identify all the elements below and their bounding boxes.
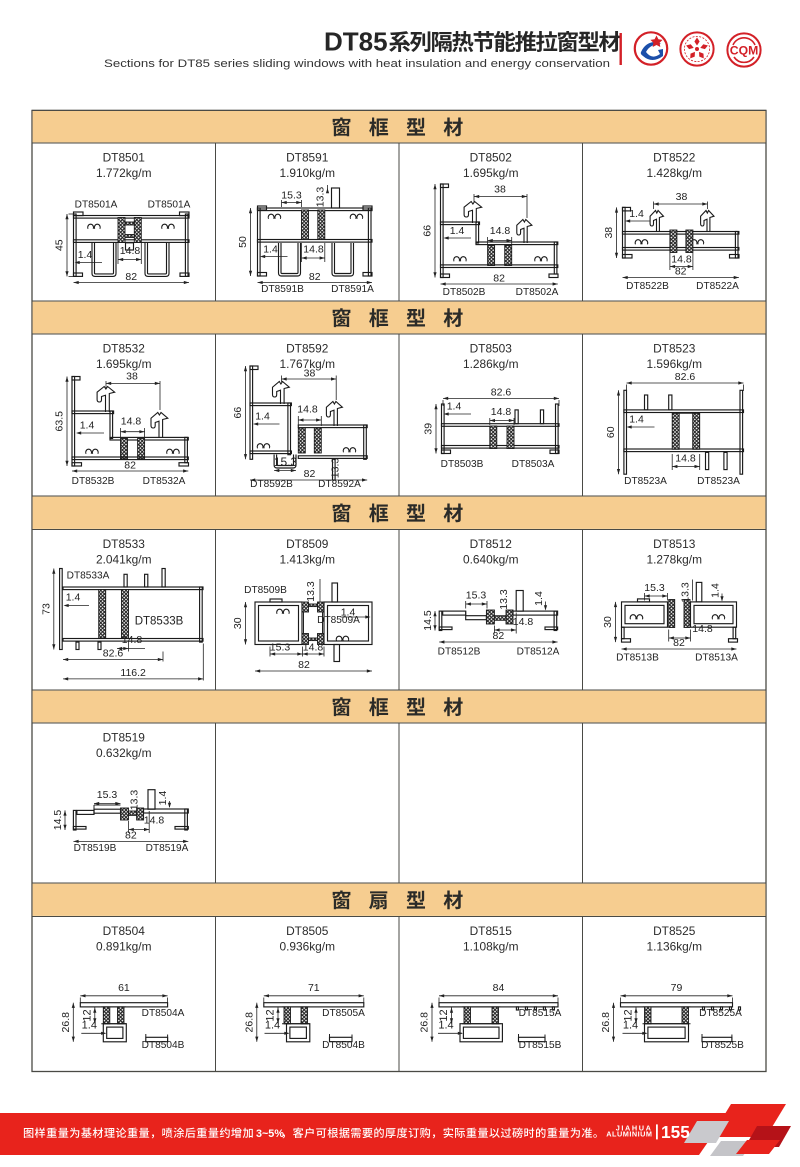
svg-text:14.5: 14.5 [422,610,434,631]
svg-text:DT8501A: DT8501A [75,200,118,211]
svg-text:0.891kg/m: 0.891kg/m [96,940,152,954]
svg-text:DT8512B: DT8512B [438,647,481,658]
svg-text:66: 66 [422,225,434,237]
svg-text:1.428kg/m: 1.428kg/m [646,166,702,180]
svg-text:1.4: 1.4 [263,244,278,256]
svg-text:1.4: 1.4 [533,591,545,606]
svg-text:CQM: CQM [730,44,758,58]
svg-text:14.8: 14.8 [692,623,713,635]
svg-text:45: 45 [54,239,66,251]
svg-text:DT8515B: DT8515B [519,1040,562,1051]
svg-text:DT8522B: DT8522B [626,281,669,292]
svg-text:82: 82 [124,460,136,472]
svg-text:DT8532A: DT8532A [143,476,186,487]
svg-text:DT8533B: DT8533B [135,616,184,628]
svg-text:14.8: 14.8 [303,244,324,256]
svg-text:DT8525A: DT8525A [699,1008,742,1019]
svg-text:DT8513A: DT8513A [695,653,738,664]
svg-text:15.3: 15.3 [97,789,118,801]
svg-text:DT8513B: DT8513B [616,653,659,664]
svg-text:39: 39 [423,423,435,435]
svg-text:DT8509B: DT8509B [244,585,287,596]
svg-text:82: 82 [309,271,321,283]
svg-text:1.695kg/m: 1.695kg/m [463,166,519,180]
svg-text:30: 30 [232,617,244,629]
svg-text:DT8522A: DT8522A [696,281,739,292]
svg-text:14.8: 14.8 [671,254,692,266]
svg-text:1.286kg/m: 1.286kg/m [463,357,519,371]
svg-text:38: 38 [603,227,615,239]
svg-text:DT8525B: DT8525B [701,1040,744,1051]
svg-text:14.8: 14.8 [144,815,165,827]
svg-text:1.4: 1.4 [450,225,465,237]
svg-text:79: 79 [671,982,683,994]
svg-text:DT8532: DT8532 [103,341,146,355]
svg-text:61: 61 [118,982,130,994]
svg-text:1.4: 1.4 [66,592,81,604]
svg-text:15.3: 15.3 [270,642,291,654]
svg-text:14.8: 14.8 [121,416,142,428]
svg-text:1.4: 1.4 [80,420,95,432]
svg-text:14.8: 14.8 [303,642,324,654]
svg-text:DT8504A: DT8504A [142,1008,185,1019]
svg-text:1.4: 1.4 [447,401,462,413]
svg-text:82.6: 82.6 [491,387,512,399]
svg-text:82: 82 [125,271,137,283]
svg-text:DT8509: DT8509 [286,537,329,551]
svg-text:82: 82 [125,830,137,842]
svg-text:DT8513: DT8513 [653,537,696,551]
svg-text:0.936kg/m: 0.936kg/m [279,940,335,954]
svg-text:13.3: 13.3 [330,458,342,479]
svg-text:DT8523A: DT8523A [624,476,667,487]
svg-text:DT8504: DT8504 [103,924,146,938]
svg-text:60: 60 [605,426,617,438]
svg-text:DT8505: DT8505 [286,924,329,938]
svg-text:1.4: 1.4 [265,1020,280,1032]
svg-text:DT8532B: DT8532B [72,476,115,487]
svg-text:38: 38 [676,191,688,203]
svg-text:26.8: 26.8 [600,1012,612,1033]
svg-text:DT8592B: DT8592B [250,479,293,490]
svg-text:84: 84 [493,982,505,994]
svg-text:1.4: 1.4 [438,1020,453,1032]
svg-text:DT8522: DT8522 [653,150,696,164]
svg-text:38: 38 [126,371,138,383]
svg-text:116.2: 116.2 [120,667,146,679]
svg-text:155: 155 [661,1122,690,1142]
svg-text:1.4: 1.4 [78,249,93,261]
svg-text:71: 71 [308,982,320,994]
svg-text:73: 73 [40,603,52,615]
svg-text:DT8512A: DT8512A [517,647,560,658]
svg-text:1.136kg/m: 1.136kg/m [646,940,702,954]
svg-text:1.596kg/m: 1.596kg/m [646,357,702,371]
svg-text:1.4: 1.4 [629,208,644,220]
svg-text:26.8: 26.8 [243,1012,255,1033]
svg-text:63.5: 63.5 [54,411,66,432]
svg-text:26.8: 26.8 [60,1012,72,1033]
svg-text:DT8591: DT8591 [286,150,329,164]
svg-text:14.5: 14.5 [52,810,64,831]
svg-text:1.772kg/m: 1.772kg/m [96,166,152,180]
svg-text:14.8: 14.8 [490,225,511,237]
svg-text:1.4: 1.4 [157,791,169,806]
svg-text:15.3: 15.3 [274,455,298,469]
svg-text:DT8592A: DT8592A [318,479,361,490]
svg-text:1.4: 1.4 [82,1020,97,1032]
svg-text:13.3: 13.3 [680,582,692,603]
svg-text:DT8523A: DT8523A [697,476,740,487]
svg-text:1.278kg/m: 1.278kg/m [646,553,702,567]
svg-text:DT8533: DT8533 [103,537,146,551]
svg-text:82.6: 82.6 [675,371,696,383]
svg-text:14.8: 14.8 [297,404,318,416]
svg-text:DT8501: DT8501 [103,150,146,164]
svg-text:DT8504B: DT8504B [322,1040,365,1051]
svg-text:DT8503B: DT8503B [441,459,484,470]
svg-text:1.4: 1.4 [623,1020,638,1032]
svg-text:0.632kg/m: 0.632kg/m [96,746,152,760]
svg-text:DT8523: DT8523 [653,341,696,355]
svg-text:DT8503A: DT8503A [512,459,555,470]
svg-text:82: 82 [493,630,505,642]
svg-text:DT8502B: DT8502B [443,287,486,298]
svg-text:38: 38 [494,184,506,196]
svg-text:82: 82 [675,266,687,278]
svg-text:82: 82 [298,659,310,671]
svg-text:DT8515: DT8515 [470,924,513,938]
svg-text:13.3: 13.3 [315,187,327,208]
svg-text:82: 82 [304,468,316,480]
svg-text:DT8504B: DT8504B [142,1040,185,1051]
svg-text:DT8501A: DT8501A [148,200,191,211]
svg-text:DT8533A: DT8533A [67,571,110,582]
svg-text:30: 30 [602,616,614,628]
svg-text:15.3: 15.3 [466,590,487,602]
svg-text:14.8: 14.8 [491,406,512,418]
svg-text:15.3: 15.3 [644,582,665,594]
svg-text:1.413kg/m: 1.413kg/m [279,553,335,567]
svg-text:1.4: 1.4 [710,583,722,598]
svg-text:0.640kg/m: 0.640kg/m [463,553,519,567]
svg-text:82.6: 82.6 [103,648,124,660]
svg-text:14.8: 14.8 [120,245,141,257]
svg-text:DT8592: DT8592 [286,341,329,355]
svg-text:14.8: 14.8 [675,453,696,465]
svg-text:DT8519: DT8519 [103,730,146,744]
svg-text:DT8525: DT8525 [653,924,696,938]
svg-text:13.3: 13.3 [129,790,141,811]
svg-text:DT8591B: DT8591B [261,284,304,295]
svg-text:DT8502A: DT8502A [516,287,559,298]
svg-text:1.4: 1.4 [255,411,270,423]
svg-text:1.4: 1.4 [629,414,644,426]
svg-text:DT8505A: DT8505A [322,1008,365,1019]
svg-text:1.910kg/m: 1.910kg/m [279,166,335,180]
svg-text:50: 50 [237,236,249,248]
svg-text:DT8519A: DT8519A [146,843,189,854]
svg-text:13.3: 13.3 [305,581,317,602]
svg-text:DT85: DT85 [324,27,388,57]
svg-text:ALUMINIUM: ALUMINIUM [606,1130,652,1139]
svg-text:15.3: 15.3 [281,190,302,202]
svg-text:14.8: 14.8 [122,634,143,646]
svg-text:DT8503: DT8503 [470,341,513,355]
svg-text:66: 66 [232,407,244,419]
svg-text:1.695kg/m: 1.695kg/m [96,357,152,371]
svg-text:DT8512: DT8512 [470,537,513,551]
svg-text:38: 38 [304,368,316,380]
svg-text:DT8502: DT8502 [470,150,513,164]
svg-text:DT8515A: DT8515A [519,1008,562,1019]
svg-text:DT8591A: DT8591A [331,284,374,295]
svg-text:13.3: 13.3 [498,589,510,610]
svg-text:DT8519B: DT8519B [74,843,117,854]
svg-text:82: 82 [673,637,685,649]
svg-text:3~5%: 3~5% [256,1128,284,1140]
svg-text:2.041kg/m: 2.041kg/m [96,553,152,567]
svg-text:Sections for DT85 series slidi: Sections for DT85 series sliding windows… [104,58,610,70]
svg-text:1.108kg/m: 1.108kg/m [463,940,519,954]
svg-text:26.8: 26.8 [419,1012,431,1033]
svg-text:82: 82 [493,273,505,285]
